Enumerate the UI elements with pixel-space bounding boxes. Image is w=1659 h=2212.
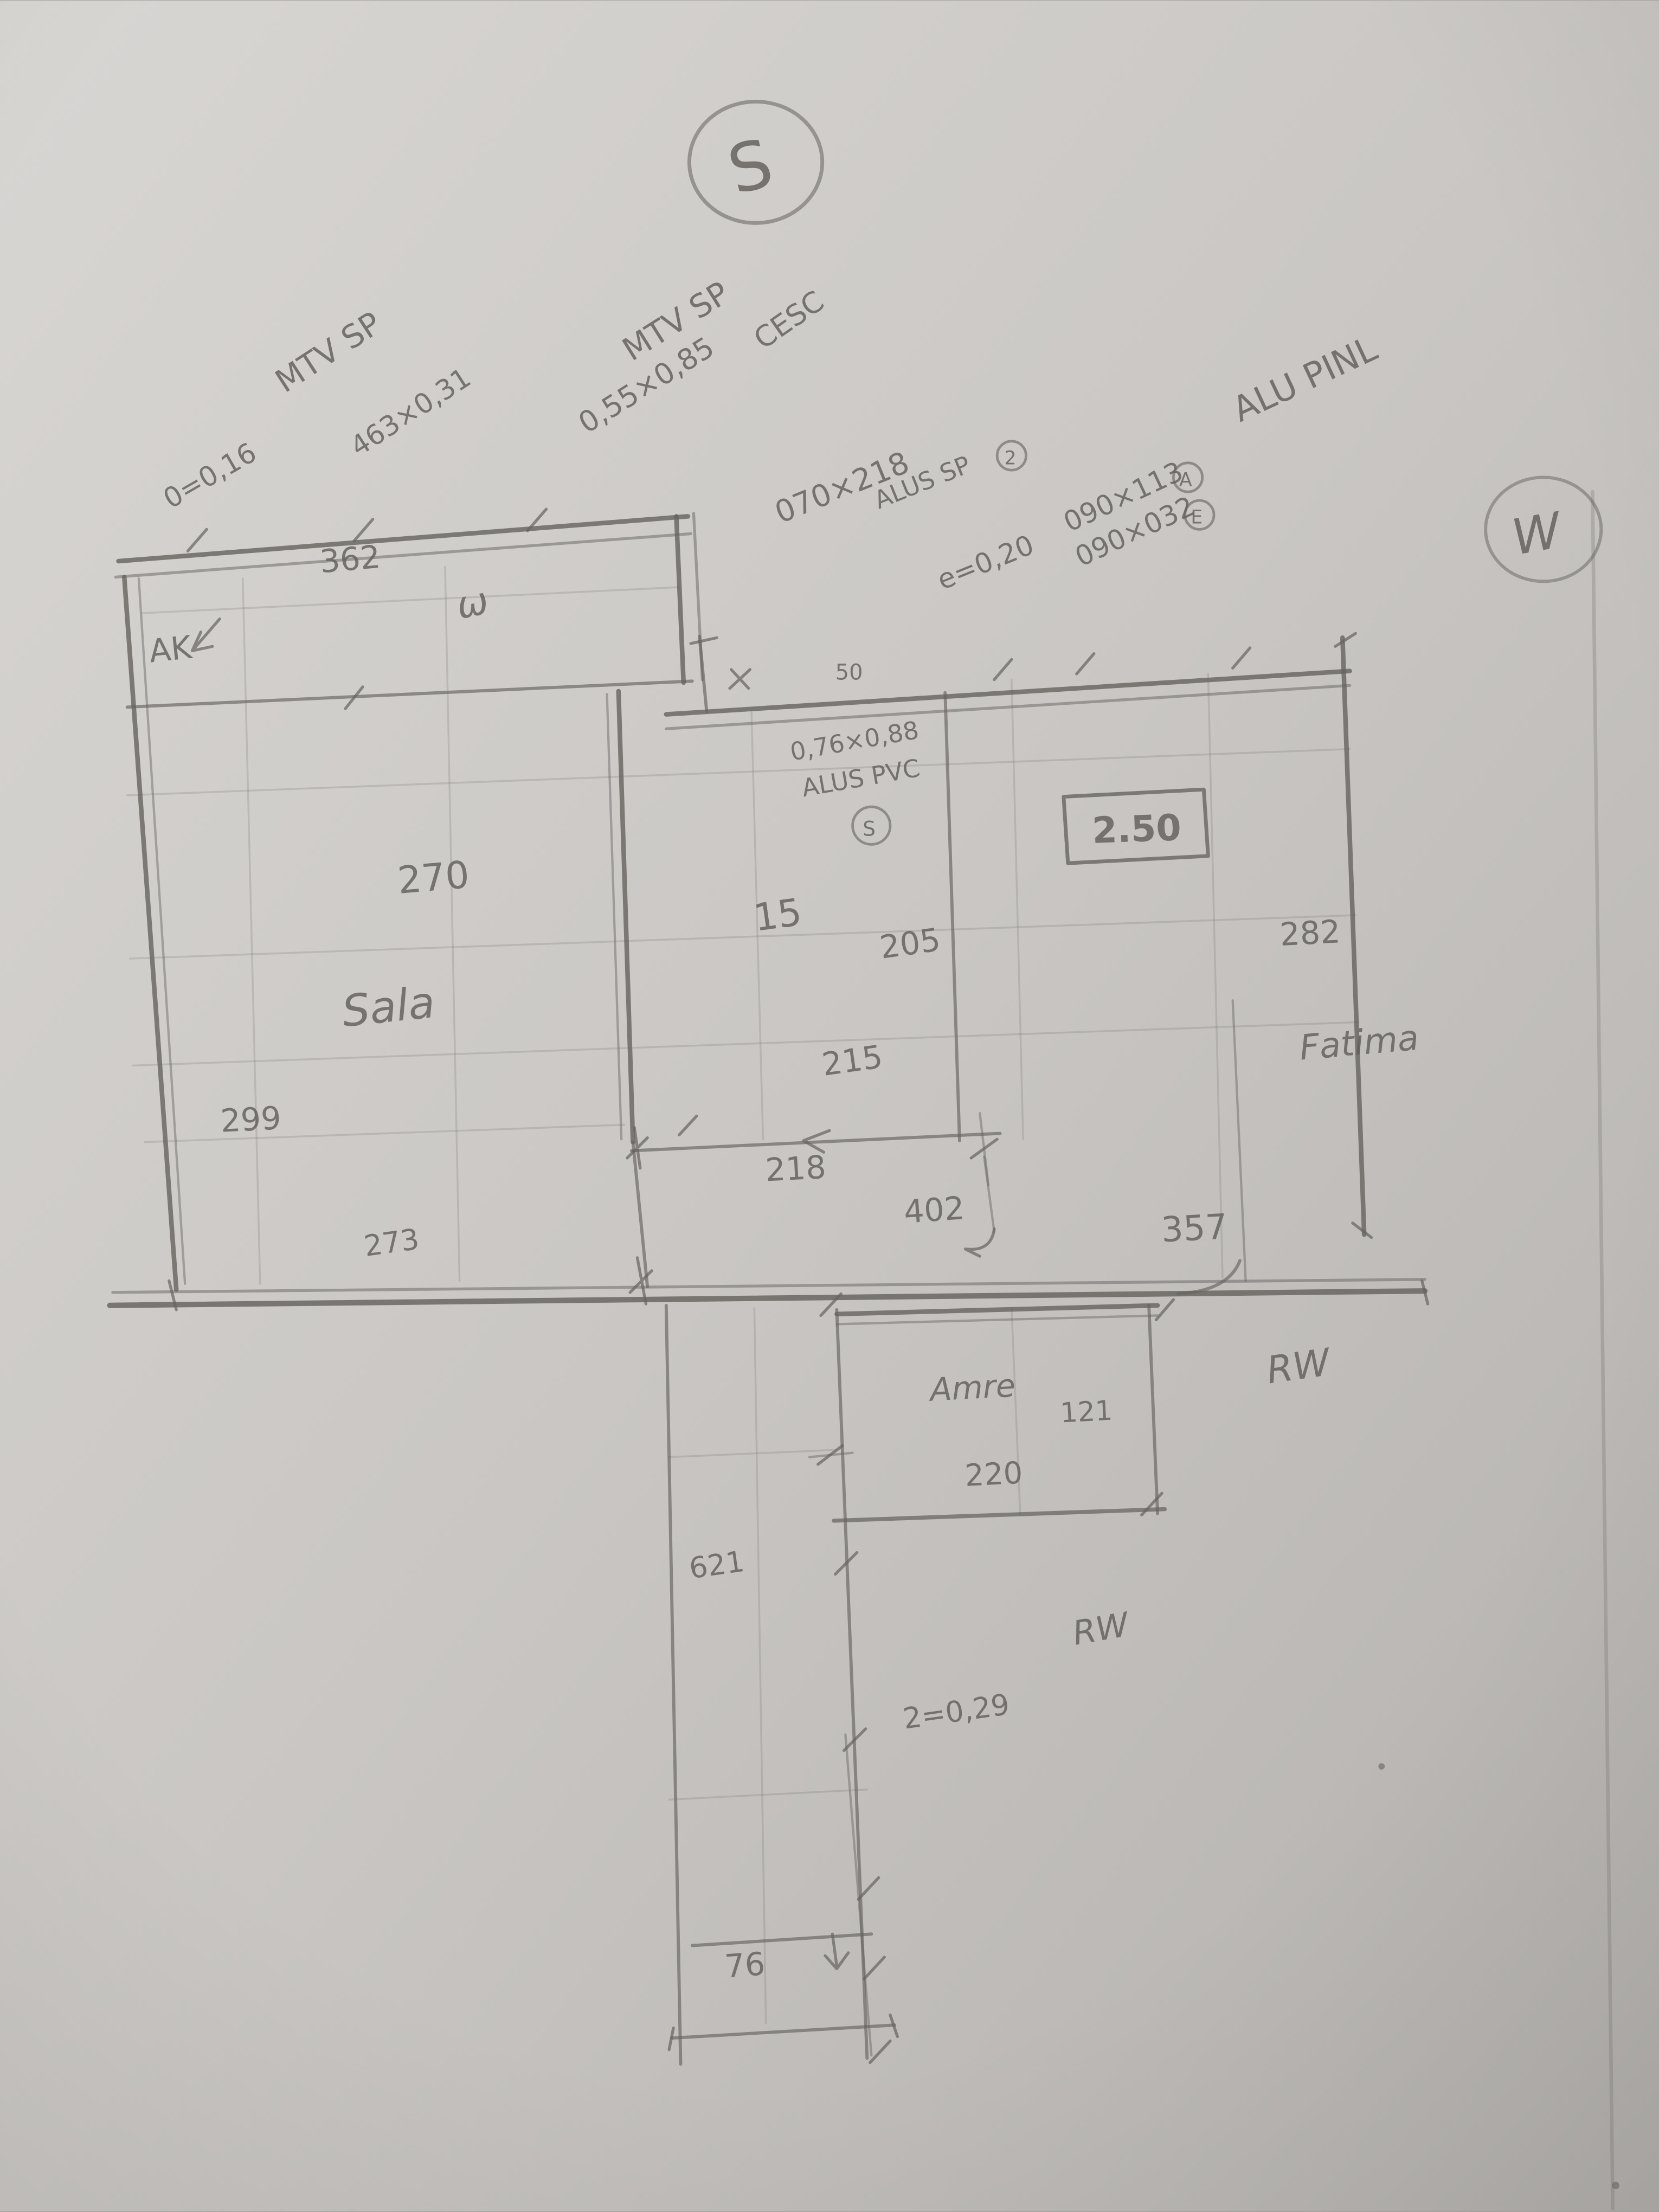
spec-alus-sp-mark: 2 — [1005, 447, 1017, 469]
dim-270: 270 — [396, 853, 471, 903]
pencil-dot — [1378, 1763, 1385, 1770]
dim-299: 299 — [220, 1099, 282, 1140]
dim-76: 76 — [723, 1945, 766, 1985]
dim-121: 121 — [1059, 1394, 1114, 1429]
pencil-dot — [1612, 2182, 1619, 2189]
dim-402: 402 — [903, 1189, 966, 1231]
dim-282: 282 — [1279, 913, 1341, 953]
dim-218: 218 — [764, 1149, 827, 1189]
dim-357: 357 — [1160, 1207, 1229, 1250]
dim-15: 15 — [751, 891, 804, 940]
spec-090x113-mark: A — [1179, 469, 1192, 491]
floor-plan-sketch: S W MTV SP 463×0,31 0=0,16 MTV SP 0,55×0… — [0, 0, 1659, 2212]
dim-220: 220 — [964, 1455, 1024, 1494]
room-label-amre: Amre — [927, 1367, 1017, 1409]
spec-090x032-mark: E — [1191, 507, 1203, 529]
label-ak: AK — [147, 629, 195, 670]
photo-of-sketch: S W MTV SP 463×0,31 0=0,16 MTV SP 0,55×0… — [0, 0, 1659, 2212]
height-value: 2.50 — [1091, 806, 1182, 852]
room-label-sala: Sala — [340, 977, 438, 1037]
spec-alus-pvc-mark: S — [863, 816, 876, 840]
dim-50: 50 — [835, 660, 863, 685]
dim-362: 362 — [318, 538, 382, 580]
name-rw-1: RW — [1264, 1341, 1334, 1393]
